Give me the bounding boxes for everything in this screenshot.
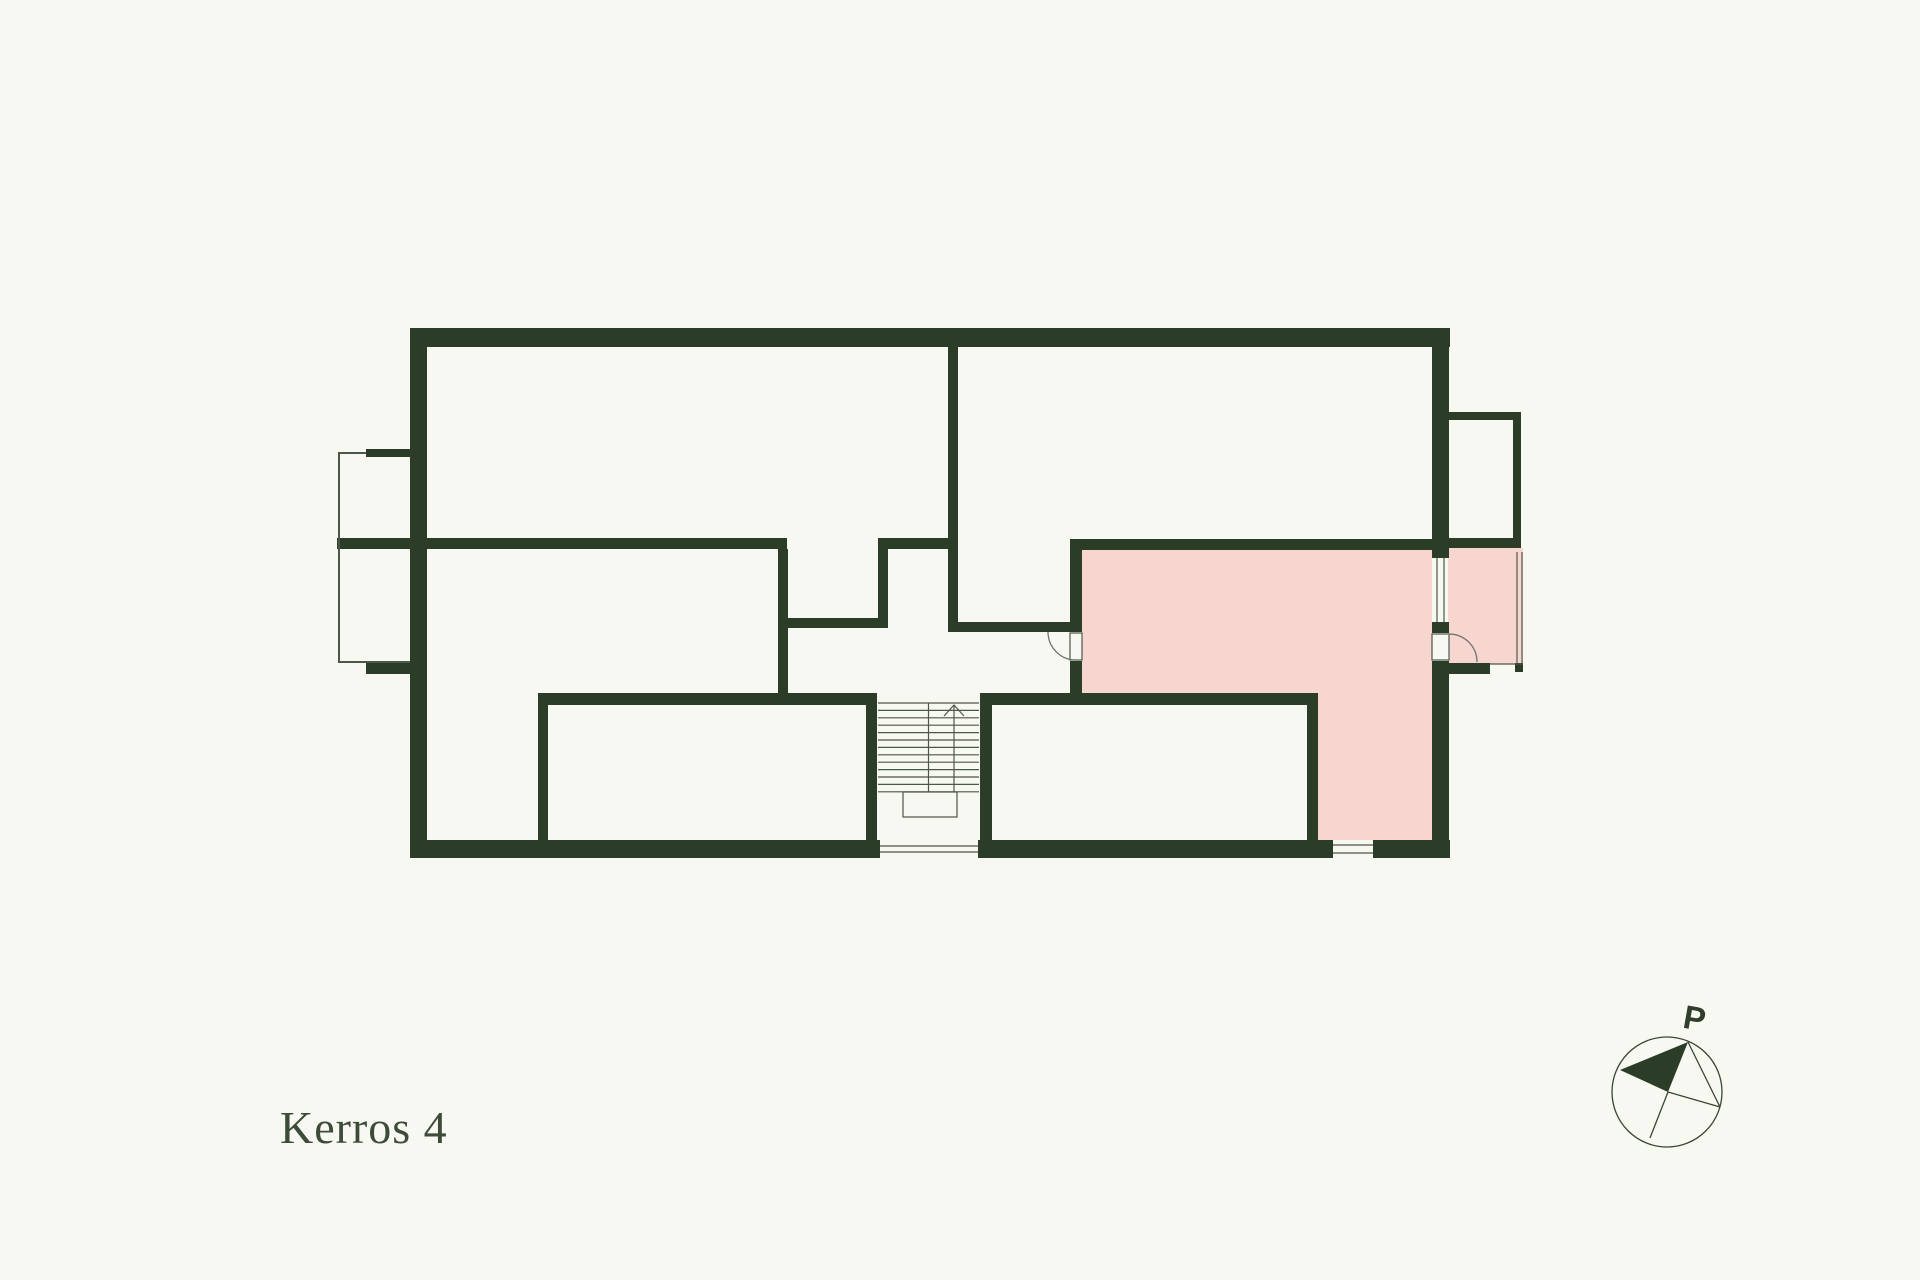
wall-segment [1070, 661, 1082, 693]
compass-rose: P [1612, 998, 1722, 1147]
wall-segment [878, 538, 958, 549]
wall-segment [1432, 661, 1449, 858]
wall-segment [1432, 328, 1449, 558]
wall-segment [538, 693, 548, 842]
floor-plan-drawing: P [0, 0, 1920, 1280]
floor-label: Kerros 4 [280, 1101, 448, 1154]
door-leaf [1070, 633, 1082, 660]
compass-star-line [1668, 1092, 1720, 1107]
balcony-wall [1513, 412, 1521, 548]
wall-segment [878, 549, 888, 628]
wall-segment [410, 328, 1450, 347]
balcony-wall [1448, 538, 1521, 548]
compass-north-pointer [1620, 1042, 1688, 1092]
wall-segment [980, 693, 992, 842]
wall-segment [1307, 693, 1318, 842]
wall-segment [948, 622, 1082, 632]
wall-segment [866, 693, 877, 842]
highlighted-balcony-area [1448, 548, 1523, 664]
door-leaf [1432, 634, 1449, 660]
compass-star-line [1650, 1092, 1668, 1138]
wall-segment [978, 840, 1333, 858]
balcony-wall-stub [366, 449, 410, 457]
balcony-wall-stub [1448, 663, 1490, 674]
balcony-wall [1448, 412, 1521, 420]
wall-segment [1432, 622, 1449, 633]
wall-segment [538, 693, 877, 705]
wall-segment [1070, 550, 1082, 632]
wall-segment [980, 693, 1318, 705]
wall-segment [337, 538, 787, 549]
wall-segment [778, 549, 788, 693]
compass-north-label: P [1681, 998, 1709, 1038]
wall-segment [410, 840, 880, 858]
wall-segment [948, 347, 958, 632]
wall-segment [788, 618, 888, 628]
wall-segment [1070, 539, 1432, 550]
floor-plan-page: P Kerros 4 [0, 0, 1920, 1280]
balcony-wall-stub [366, 663, 412, 674]
stairwell [878, 703, 979, 852]
stair-landing [903, 792, 957, 817]
wall-segment [410, 328, 427, 858]
